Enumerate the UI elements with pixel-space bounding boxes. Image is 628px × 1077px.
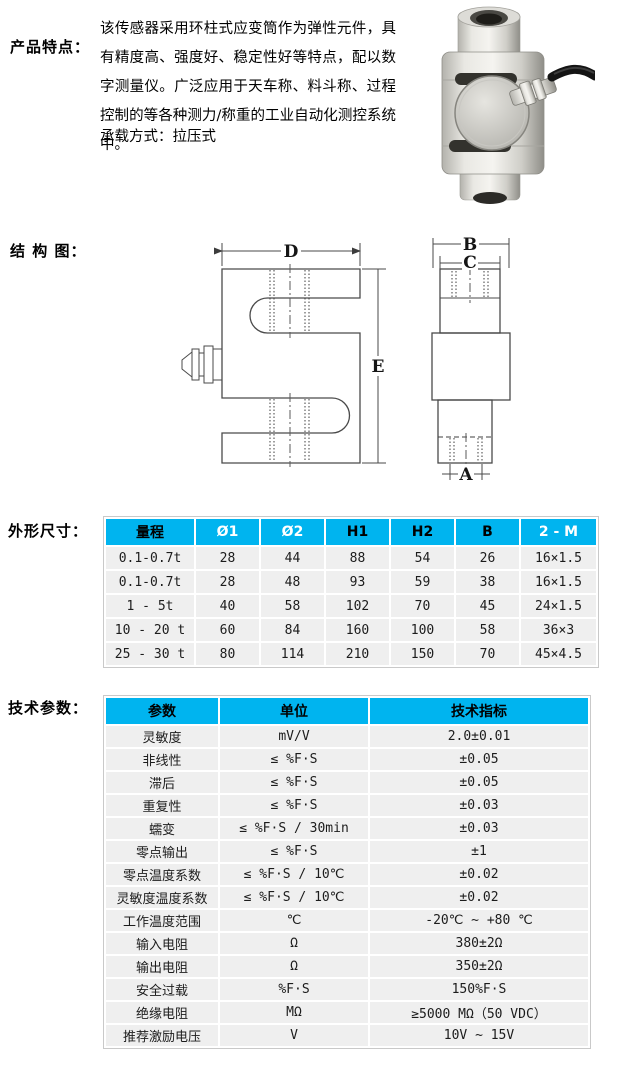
parameters-table: 参数单位技术指标 灵敏度mV/V2.0±0.01非线性≤ %F·S±0.05滞后… (103, 695, 591, 1049)
column-header: 2 - M (521, 519, 596, 545)
table-cell: 160 (326, 619, 389, 641)
table-cell: ℃ (220, 910, 368, 931)
table-cell: 93 (326, 571, 389, 593)
table-cell: 输入电阻 (106, 933, 218, 954)
table-cell: 2.0±0.01 (370, 726, 588, 747)
table-cell: 58 (456, 619, 519, 641)
table-cell: 10 - 20 t (106, 619, 194, 641)
table-cell: ≤ %F·S / 30min (220, 818, 368, 839)
column-header: 技术指标 (370, 698, 588, 724)
table-cell: ±0.03 (370, 818, 588, 839)
table-cell: 零点温度系数 (106, 864, 218, 885)
table-cell: ±1 (370, 841, 588, 862)
table-cell: 80 (196, 643, 259, 665)
table-cell: 1 - 5t (106, 595, 194, 617)
table-row: 非线性≤ %F·S±0.05 (106, 749, 588, 770)
table-row: 推荐激励电压V10V ~ 15V (106, 1025, 588, 1046)
table-row: 灵敏度mV/V2.0±0.01 (106, 726, 588, 747)
table-cell: 重复性 (106, 795, 218, 816)
table-cell: 绝缘电阻 (106, 1002, 218, 1023)
table-cell: V (220, 1025, 368, 1046)
table-cell: ≤ %F·S (220, 772, 368, 793)
table-cell: 非线性 (106, 749, 218, 770)
table-cell: 70 (456, 643, 519, 665)
table-cell: 40 (196, 595, 259, 617)
column-header: B (456, 519, 519, 545)
table-cell: 58 (261, 595, 324, 617)
table-cell: ≤ %F·S / 10℃ (220, 864, 368, 885)
table-row: 重复性≤ %F·S±0.03 (106, 795, 588, 816)
table-cell: ±0.02 (370, 864, 588, 885)
table-cell: 350±2Ω (370, 956, 588, 977)
table-cell: 210 (326, 643, 389, 665)
structure-diagram-graphic: D E B (180, 230, 525, 488)
table-cell: 零点输出 (106, 841, 218, 862)
product-photo (398, 4, 595, 205)
table-row: 10 - 20 t60841601005836×3 (106, 619, 596, 641)
table-cell: 0.1-0.7t (106, 571, 194, 593)
product-spec-page: 产品特点： 该传感器采用环柱式应变筒作为弹性元件，具有精度高、强度好、稳定性好等… (0, 0, 628, 1077)
table-cell: 推荐激励电压 (106, 1025, 218, 1046)
table-header-row: 量程Ø1Ø2H1H2B2 - M (106, 519, 596, 545)
table-cell: -20℃ ~ +80 ℃ (370, 910, 588, 931)
column-header: H1 (326, 519, 389, 545)
table-cell: ≤ %F·S (220, 795, 368, 816)
table-header-row: 参数单位技术指标 (106, 698, 588, 724)
column-header: 参数 (106, 698, 218, 724)
table-cell: ≥5000 MΩ（50 VDC） (370, 1002, 588, 1023)
table-cell: 灵敏度 (106, 726, 218, 747)
table-cell: Ω (220, 956, 368, 977)
table-cell: ≤ %F·S (220, 749, 368, 770)
table-cell: 36×3 (521, 619, 596, 641)
table-cell: 16×1.5 (521, 571, 596, 593)
table-cell: 0.1-0.7t (106, 547, 194, 569)
table-cell: 输出电阻 (106, 956, 218, 977)
table-cell: 150 (391, 643, 454, 665)
structure-diagram: D E B (180, 230, 525, 488)
table-cell: 60 (196, 619, 259, 641)
table-cell: ±0.02 (370, 887, 588, 908)
parameters-section-label: 技术参数： (8, 697, 88, 718)
table-cell: 100 (391, 619, 454, 641)
load-cell-photo-graphic (398, 4, 595, 205)
table-cell: 28 (196, 571, 259, 593)
table-row: 安全过载%F·S150%F·S (106, 979, 588, 1000)
table-cell: ±0.05 (370, 772, 588, 793)
table-cell: 工作温度范围 (106, 910, 218, 931)
features-section-label: 产品特点： (10, 36, 90, 57)
table-row: 0.1-0.7t284488542616×1.5 (106, 547, 596, 569)
table-row: 蠕变≤ %F·S / 30min±0.03 (106, 818, 588, 839)
table-row: 输出电阻Ω350±2Ω (106, 956, 588, 977)
table-cell: 54 (391, 547, 454, 569)
table-cell: 滞后 (106, 772, 218, 793)
table-cell: 45×4.5 (521, 643, 596, 665)
table-cell: 70 (391, 595, 454, 617)
table-row: 绝缘电阻MΩ≥5000 MΩ（50 VDC） (106, 1002, 588, 1023)
column-header: Ø1 (196, 519, 259, 545)
table-row: 滞后≤ %F·S±0.05 (106, 772, 588, 793)
dimensions-table: 量程Ø1Ø2H1H2B2 - M 0.1-0.7t284488542616×1.… (103, 516, 599, 668)
table-cell: 25 - 30 t (106, 643, 194, 665)
table-cell: ≤ %F·S / 10℃ (220, 887, 368, 908)
table-cell: 45 (456, 595, 519, 617)
table-row: 零点温度系数≤ %F·S / 10℃±0.02 (106, 864, 588, 885)
table-cell: 114 (261, 643, 324, 665)
column-header: 单位 (220, 698, 368, 724)
table-cell: 10V ~ 15V (370, 1025, 588, 1046)
table-cell: 38 (456, 571, 519, 593)
table-row: 输入电阻Ω380±2Ω (106, 933, 588, 954)
table-cell: MΩ (220, 1002, 368, 1023)
structure-section-label: 结 构 图： (10, 240, 86, 261)
table-cell: 16×1.5 (521, 547, 596, 569)
table-cell: %F·S (220, 979, 368, 1000)
dimension-label-c: C (463, 253, 477, 273)
dimensions-section-label: 外形尺寸： (8, 520, 88, 541)
dimension-label-b: B (463, 235, 477, 255)
table-cell: 44 (261, 547, 324, 569)
table-cell: 380±2Ω (370, 933, 588, 954)
table-row: 1 - 5t4058102704524×1.5 (106, 595, 596, 617)
table-cell: 26 (456, 547, 519, 569)
table-cell: 59 (391, 571, 454, 593)
table-cell: ±0.05 (370, 749, 588, 770)
dimension-label-e: E (372, 357, 385, 377)
table-cell: 48 (261, 571, 324, 593)
dimension-label-d: D (284, 242, 299, 262)
table-row: 灵敏度温度系数≤ %F·S / 10℃±0.02 (106, 887, 588, 908)
table-cell: 安全过载 (106, 979, 218, 1000)
table-row: 零点输出≤ %F·S±1 (106, 841, 588, 862)
table-row: 0.1-0.7t284893593816×1.5 (106, 571, 596, 593)
table-cell: ±0.03 (370, 795, 588, 816)
column-header: H2 (391, 519, 454, 545)
table-cell: mV/V (220, 726, 368, 747)
table-cell: Ω (220, 933, 368, 954)
table-cell: 灵敏度温度系数 (106, 887, 218, 908)
table-row: 25 - 30 t801142101507045×4.5 (106, 643, 596, 665)
column-header: 量程 (106, 519, 194, 545)
table-cell: 102 (326, 595, 389, 617)
table-cell: 蠕变 (106, 818, 218, 839)
table-row: 工作温度范围℃-20℃ ~ +80 ℃ (106, 910, 588, 931)
table-cell: 28 (196, 547, 259, 569)
table-cell: 24×1.5 (521, 595, 596, 617)
table-cell: 150%F·S (370, 979, 588, 1000)
table-cell: 84 (261, 619, 324, 641)
dimension-label-a: A (458, 465, 473, 485)
load-mode-text: 承载方式：拉压式 (100, 123, 216, 152)
table-cell: ≤ %F·S (220, 841, 368, 862)
column-header: Ø2 (261, 519, 324, 545)
table-cell: 88 (326, 547, 389, 569)
